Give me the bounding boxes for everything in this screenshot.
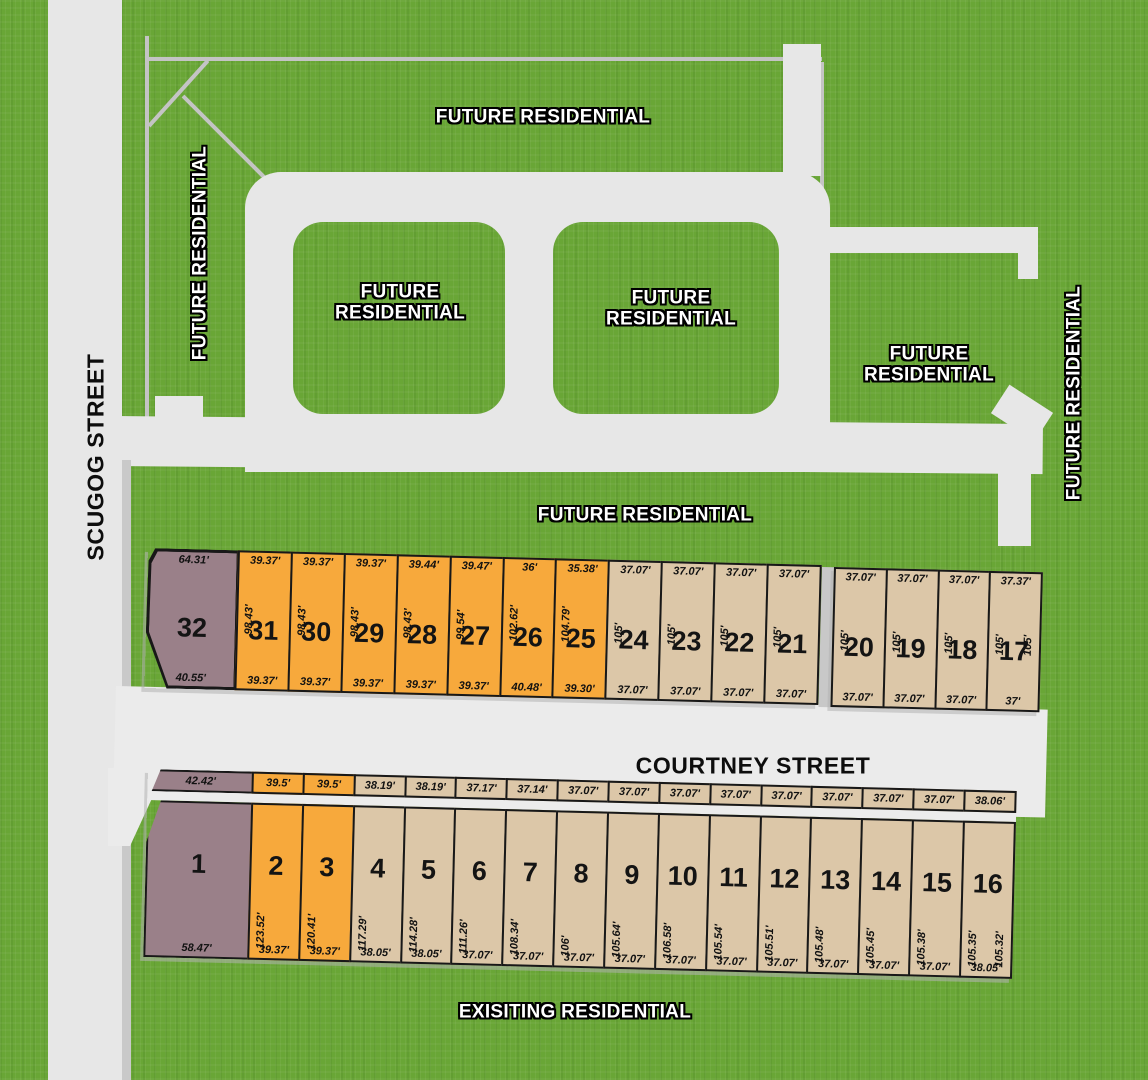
lot-front-dim: 37.07' [873, 792, 903, 805]
boundary-line-left-vertical [145, 36, 149, 418]
lot-10[interactable]: 37.07'106.58'1037.07' [654, 782, 712, 971]
lot-1-frontage-strip: 42.42' [147, 769, 254, 794]
lot-front-dim: 39.5' [317, 778, 341, 791]
lot-4[interactable]: 38.19'117.29'438.05' [349, 774, 407, 963]
lot-number: 16 [972, 869, 1003, 901]
lot-2-frontage-strip: 39.5' [251, 772, 304, 795]
lot-rear-dim: 37.07' [920, 961, 950, 974]
lot-23[interactable]: 37.07'105'2337.07' [658, 561, 716, 702]
lot-16-frontage-strip: 38.06' [963, 790, 1016, 813]
lot-rear-dim: 39.37' [353, 677, 383, 690]
lot-26[interactable]: 36'102.62'2640.48' [499, 557, 557, 698]
lot-number: 3 [319, 852, 335, 883]
lot-rear-dim: 37.07' [946, 694, 976, 707]
lot-12[interactable]: 37.07'105.51'1237.07' [756, 785, 814, 974]
lot-front-dim: 37.07' [620, 564, 650, 577]
lot-number: 14 [871, 866, 902, 898]
lot-rear-dim: 39.37' [406, 679, 436, 692]
lot-number: 1 [191, 849, 207, 880]
lot-24[interactable]: 37.07'105'2437.07' [605, 560, 663, 701]
lot-22[interactable]: 37.07'105'2237.07' [710, 562, 768, 703]
lot-number: 11 [719, 862, 748, 894]
lot-front-dim: 39.47' [461, 560, 491, 573]
lot-3-frontage-strip: 39.5' [302, 773, 355, 796]
lot-front-dim: 39.5' [266, 777, 290, 790]
lot-front-dim: 64.31' [178, 554, 208, 567]
lot-number: 12 [769, 863, 800, 895]
lot-13[interactable]: 37.07'105.48'1337.07' [806, 786, 864, 975]
lot-rear-dim: 37.07' [615, 953, 645, 966]
lot-front-dim: 37.07' [720, 788, 750, 801]
lot-block-north-east: 37.07'105'2037.07'37.07'105'1937.07'37.0… [830, 567, 1042, 712]
lot-rear-dim: 37.07' [723, 687, 753, 700]
lot-15-frontage-strip: 37.07' [912, 788, 965, 811]
lot-front-dim: 35.38' [567, 563, 597, 576]
lot-30[interactable]: 39.37'98.43'3039.37' [287, 552, 345, 693]
lot-4-frontage-strip: 38.19' [353, 774, 406, 797]
lot-number: 8 [573, 858, 589, 889]
lot-8[interactable]: 37.07'106'837.07' [552, 779, 610, 968]
lot-front-dim: 37.07' [568, 785, 598, 798]
main-road-driveway-stub [155, 396, 203, 424]
boundary-line-diagonal-1 [148, 59, 210, 127]
lot-number: 18 [947, 634, 978, 666]
lot-rear-dim: 40.48' [511, 681, 541, 694]
lot-front-dim: 37.07' [673, 565, 703, 578]
lot-block-north-west: 64.31'3240.55'39.37'98.43'3139.37'39.37'… [144, 548, 821, 705]
future-residential-label-island-east: FUTURE RESIDENTIAL [591, 288, 751, 331]
lot-number: 19 [895, 633, 926, 665]
lot-rear-dim: 58.47' [181, 942, 211, 955]
lot-7[interactable]: 37.14'108.34'737.07' [501, 778, 559, 967]
lot-17[interactable]: 37.37'105'105'1737' [986, 571, 1043, 712]
lot-front-dim: 37.07' [897, 573, 927, 586]
lot-number: 30 [301, 616, 332, 648]
lot-rear-dim: 37.07' [462, 949, 492, 962]
lot-number: 13 [820, 865, 851, 897]
lot-rear-dim: 37.07' [670, 685, 700, 698]
lot-rear-dim: 37' [1005, 695, 1020, 707]
lot-rear-dim: 39.30' [564, 683, 594, 696]
lot-number: 6 [471, 856, 487, 887]
lot-19[interactable]: 37.07'105'1937.07' [882, 568, 939, 709]
lot-rear-dim: 39.37' [247, 675, 277, 688]
lot-front-dim: 39.37' [250, 555, 280, 568]
lot-front-dim: 37.07' [845, 571, 875, 584]
lot-11-frontage-strip: 37.07' [709, 783, 762, 806]
lot-number: 7 [522, 857, 538, 888]
lot-27[interactable]: 39.47'99.54'2739.37' [446, 556, 504, 697]
lot-25[interactable]: 35.38'104.79'2539.30' [552, 558, 610, 699]
future-residential-label-island-west: FUTURE RESIDENTIAL [320, 282, 480, 325]
lot-3[interactable]: 39.5'120.41'339.37' [298, 773, 356, 962]
lot-rear-dim: 37.07' [716, 955, 746, 968]
lot-6[interactable]: 37.17'111.26'637.07' [451, 777, 509, 966]
scugog-street-label: SCUGOG STREET [83, 353, 110, 560]
lot-rear-dim: 39.37' [300, 676, 330, 689]
lot-rear-dim: 37.07' [869, 959, 899, 972]
lot-number: 9 [624, 860, 640, 891]
lot-number: 27 [460, 620, 491, 652]
east-vertical-road [998, 452, 1031, 546]
lot-front-dim: 37.17' [466, 782, 496, 795]
east-road-notch [1018, 251, 1038, 279]
lot-front-dim: 39.37' [303, 556, 333, 569]
lot-front-dim: 37.07' [771, 790, 801, 803]
lot-rear-dim: 38.05' [411, 948, 441, 961]
lot-number: 17 [999, 635, 1030, 667]
existing-residential-label: EXISITING RESIDENTIAL [459, 1001, 691, 1022]
lot-front-dim: 37.07' [619, 786, 649, 799]
lot-front-dim: 37.07' [779, 568, 809, 581]
lot-front-dim: 38.06' [975, 795, 1005, 808]
east-road [826, 227, 1038, 253]
future-residential-label-east: FUTURE RESIDENTIAL [849, 344, 1009, 387]
lot-rear-dim: 39.37' [309, 945, 339, 958]
lot-number: 29 [354, 617, 385, 649]
lot-number: 24 [618, 624, 649, 656]
lot-rear-dim: 37.07' [767, 957, 797, 970]
lot-front-dim: 37.07' [670, 787, 700, 800]
lot-front-dim: 36' [522, 561, 537, 573]
lot-number: 26 [512, 621, 543, 653]
main-road [118, 416, 1043, 474]
lot-14-frontage-strip: 37.07' [862, 787, 915, 810]
future-residential-label-above-lots: FUTURE RESIDENTIAL [538, 504, 752, 525]
lot-front-dim: 37.14' [517, 783, 547, 796]
lot-2[interactable]: 39.5'123.52'239.37' [247, 772, 305, 961]
lot-number: 32 [177, 613, 208, 645]
lot-rear-dim: 37.07' [818, 958, 848, 971]
lot-number: 31 [248, 615, 279, 647]
lot-number: 23 [671, 625, 702, 657]
lot-15[interactable]: 37.07'105.38'1537.07' [908, 788, 966, 977]
lot-9-frontage-strip: 37.07' [607, 781, 660, 804]
lot-rear-dim: 39.37' [259, 944, 289, 957]
lot-rear-dim: 40.55' [175, 672, 205, 685]
lot-rear-dim: 38.05' [970, 962, 1000, 975]
lot-front-dim: 37.07' [726, 567, 756, 580]
lot-number: 5 [421, 855, 437, 886]
lot-rear-dim: 37.07' [617, 684, 647, 697]
lot-21[interactable]: 37.07'105'2137.07' [763, 564, 821, 705]
lot-number: 10 [667, 861, 698, 893]
lot-28[interactable]: 39.44'98.43'2839.37' [393, 554, 451, 695]
lot-front-dim: 37.07' [822, 791, 852, 804]
lot-31[interactable]: 39.37'98.43'3139.37' [234, 550, 292, 691]
lot-block-south: 42.42'158.47'39.5'123.52'239.37'39.5'120… [143, 769, 1016, 979]
lot-18[interactable]: 37.07'105'1837.07' [934, 570, 991, 711]
future-residential-label-west-vertical: FUTURE RESIDENTIAL [189, 146, 210, 360]
lot-12-frontage-strip: 37.07' [760, 785, 813, 808]
lot-number: 15 [922, 867, 953, 899]
north-stub-road [783, 44, 821, 176]
lot-number: 20 [843, 631, 874, 663]
lot-number: 21 [777, 628, 808, 660]
lot-rear-dim: 37.07' [842, 691, 872, 704]
lot-number: 28 [407, 619, 438, 651]
courtney-street-label: COURTNEY STREET [636, 753, 871, 780]
lot-rear-dim: 38.05' [360, 946, 390, 959]
lot-front-dim: 39.37' [356, 557, 386, 570]
lot-13-frontage-strip: 37.07' [811, 786, 864, 809]
lot-rear-dim: 37.07' [665, 954, 695, 967]
lot-rear-dim: 37.07' [564, 952, 594, 965]
lot-front-dim: 37.07' [924, 794, 954, 807]
lot-rear-dim: 37.07' [513, 950, 543, 963]
lot-8-frontage-strip: 37.07' [556, 779, 609, 802]
lot-front-dim: 39.44' [409, 559, 439, 572]
lot-rear-dim: 39.37' [458, 680, 488, 693]
lot-6-frontage-strip: 37.17' [455, 777, 508, 800]
lot-rear-dim: 37.07' [776, 688, 806, 701]
lot-number: 22 [724, 627, 755, 659]
lot-11[interactable]: 37.07'105.54'1137.07' [705, 783, 763, 972]
lot-32[interactable]: 64.31'3240.55' [144, 548, 240, 690]
lot-number: 2 [268, 851, 284, 882]
lot-10-frontage-strip: 37.07' [658, 782, 711, 805]
lot-front-dim: 42.42' [185, 775, 215, 788]
lot-5-frontage-strip: 38.19' [404, 775, 457, 798]
site-plan-map: 64.31'3240.55'39.37'98.43'3139.37'39.37'… [0, 0, 1148, 1080]
lot-number: 25 [565, 623, 596, 655]
lot-29[interactable]: 39.37'98.43'2939.37' [340, 553, 398, 694]
lot-front-dim: 38.19' [365, 779, 395, 792]
lot-16[interactable]: 38.06'105.35'105.32'1638.05' [959, 790, 1017, 979]
lot-5[interactable]: 38.19'114.28'538.05' [400, 775, 458, 964]
lot-20[interactable]: 37.07'105'2037.07' [830, 567, 887, 708]
future-residential-label-east-vertical: FUTURE RESIDENTIAL [1063, 286, 1084, 500]
lot-front-dim: 38.19' [415, 781, 445, 794]
lot-9[interactable]: 37.07'105.64'937.07' [603, 781, 661, 970]
lot-14[interactable]: 37.07'105.45'1437.07' [857, 787, 915, 976]
lot-1[interactable]: 42.42'158.47' [143, 769, 254, 960]
lot-rear-dim: 37.07' [894, 693, 924, 706]
lot-front-dim: 37.37' [1001, 575, 1031, 588]
lot-number: 4 [370, 853, 386, 884]
lot-front-dim: 37.07' [949, 574, 979, 587]
lot-7-frontage-strip: 37.14' [506, 778, 559, 801]
future-residential-label-north: FUTURE RESIDENTIAL [436, 106, 650, 127]
boundary-line-top [145, 57, 822, 61]
